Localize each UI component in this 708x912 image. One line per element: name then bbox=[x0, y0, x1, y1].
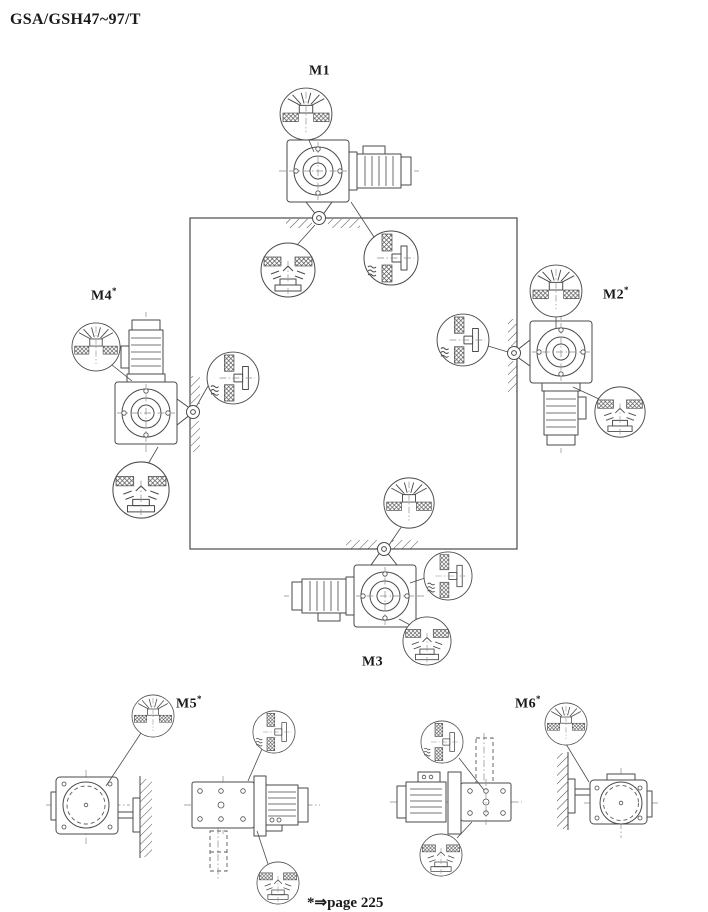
oil-level-plug-callout-m5 bbox=[253, 711, 295, 753]
footnote-arrow-icon: ⇒ bbox=[315, 895, 328, 911]
position-label-m1: M1 bbox=[309, 61, 330, 80]
position-label-m6-text: M6 bbox=[515, 697, 536, 712]
position-label-m2-text: M2 bbox=[603, 288, 624, 303]
position-label-m5-asterisk: * bbox=[197, 694, 202, 704]
oil-level-plug-callout-m6 bbox=[421, 721, 463, 763]
gearunit-m5-top bbox=[184, 776, 320, 879]
gearunit-m4 bbox=[115, 312, 200, 452]
position-label-m3-text: M3 bbox=[362, 655, 383, 670]
gearunit-m3 bbox=[284, 543, 424, 628]
gearunit-m6-front bbox=[557, 752, 658, 838]
breather-plug-callout-m3 bbox=[384, 478, 434, 528]
page-title: GSA/GSH47~97/T bbox=[10, 11, 141, 29]
position-label-m4-asterisk: * bbox=[112, 286, 117, 296]
footnote-asterisk: * bbox=[307, 895, 315, 911]
drain-plug-callout-m3 bbox=[403, 617, 451, 665]
oil-level-plug-callout-m2 bbox=[437, 314, 489, 366]
gearunit-m5-front bbox=[46, 770, 152, 858]
drain-plug-callout-m2 bbox=[595, 387, 645, 437]
position-label-m6-asterisk: * bbox=[536, 694, 541, 704]
breather-plug-callout-m5 bbox=[132, 695, 174, 737]
breather-plug-callout-m2 bbox=[530, 265, 582, 317]
position-label-m6: M6* bbox=[515, 694, 541, 713]
position-label-m4-text: M4 bbox=[91, 289, 112, 304]
gearunit-m1 bbox=[279, 140, 419, 225]
breather-plug-callout-m6 bbox=[545, 703, 587, 745]
breather-plug-callout-m1 bbox=[280, 88, 332, 140]
position-label-m2: M2* bbox=[603, 285, 629, 304]
position-label-m1-text: M1 bbox=[309, 64, 330, 79]
oil-level-plug-callout-m1 bbox=[364, 231, 418, 285]
position-label-m5: M5* bbox=[176, 694, 202, 713]
oil-level-plug-callout-m4 bbox=[207, 352, 259, 404]
position-label-m2-asterisk: * bbox=[624, 285, 629, 295]
mounting-position-diagram: GSA/GSH47~97/T M1 M2* M3 M4* M5* M6* *⇒p… bbox=[0, 0, 708, 910]
position-label-m4: M4* bbox=[91, 286, 117, 305]
position-label-m5-text: M5 bbox=[176, 697, 197, 712]
drain-plug-callout-m4 bbox=[113, 462, 169, 518]
oil-level-plug-callout-m3 bbox=[424, 552, 472, 600]
gearunit-m2 bbox=[508, 313, 593, 453]
drain-plug-callout-m5 bbox=[257, 862, 299, 904]
mounting-diagram-svg bbox=[0, 0, 708, 910]
breather-plug-callout-m4 bbox=[72, 323, 120, 371]
page-reference-note: *⇒page 225 bbox=[307, 893, 383, 912]
drain-plug-callout-m6 bbox=[420, 834, 462, 876]
footnote-page-text: page 225 bbox=[327, 895, 383, 911]
drain-plug-callout-m1 bbox=[261, 243, 315, 297]
position-label-m3: M3 bbox=[362, 652, 383, 671]
